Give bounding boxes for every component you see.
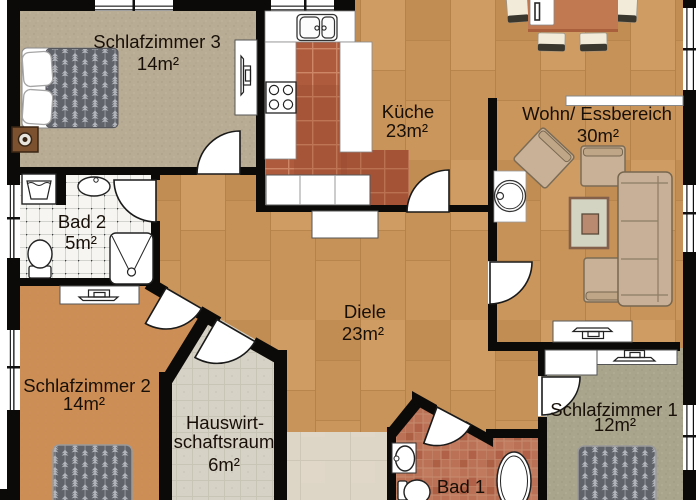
svg-text:5m²: 5m² (65, 232, 97, 253)
svg-text:14m²: 14m² (137, 53, 179, 74)
svg-text:23m²: 23m² (386, 120, 428, 141)
svg-text:Schlafzimmer 3: Schlafzimmer 3 (93, 31, 220, 52)
svg-text:23m²: 23m² (342, 323, 384, 344)
svg-text:30m²: 30m² (577, 125, 619, 146)
svg-text:12m²: 12m² (594, 414, 636, 435)
svg-text:Diele: Diele (344, 301, 386, 322)
svg-text:Küche: Küche (382, 101, 434, 122)
svg-text:14m²: 14m² (63, 393, 105, 414)
svg-text:Hauswirt-: Hauswirt- (186, 412, 264, 433)
svg-text:Wohn/ Essbereich: Wohn/ Essbereich (522, 103, 672, 124)
svg-text:6m²: 6m² (208, 454, 240, 475)
svg-text:Bad 2: Bad 2 (58, 211, 106, 232)
svg-text:Bad 1: Bad 1 (437, 476, 485, 497)
svg-text:schaftsraum: schaftsraum (174, 431, 275, 452)
